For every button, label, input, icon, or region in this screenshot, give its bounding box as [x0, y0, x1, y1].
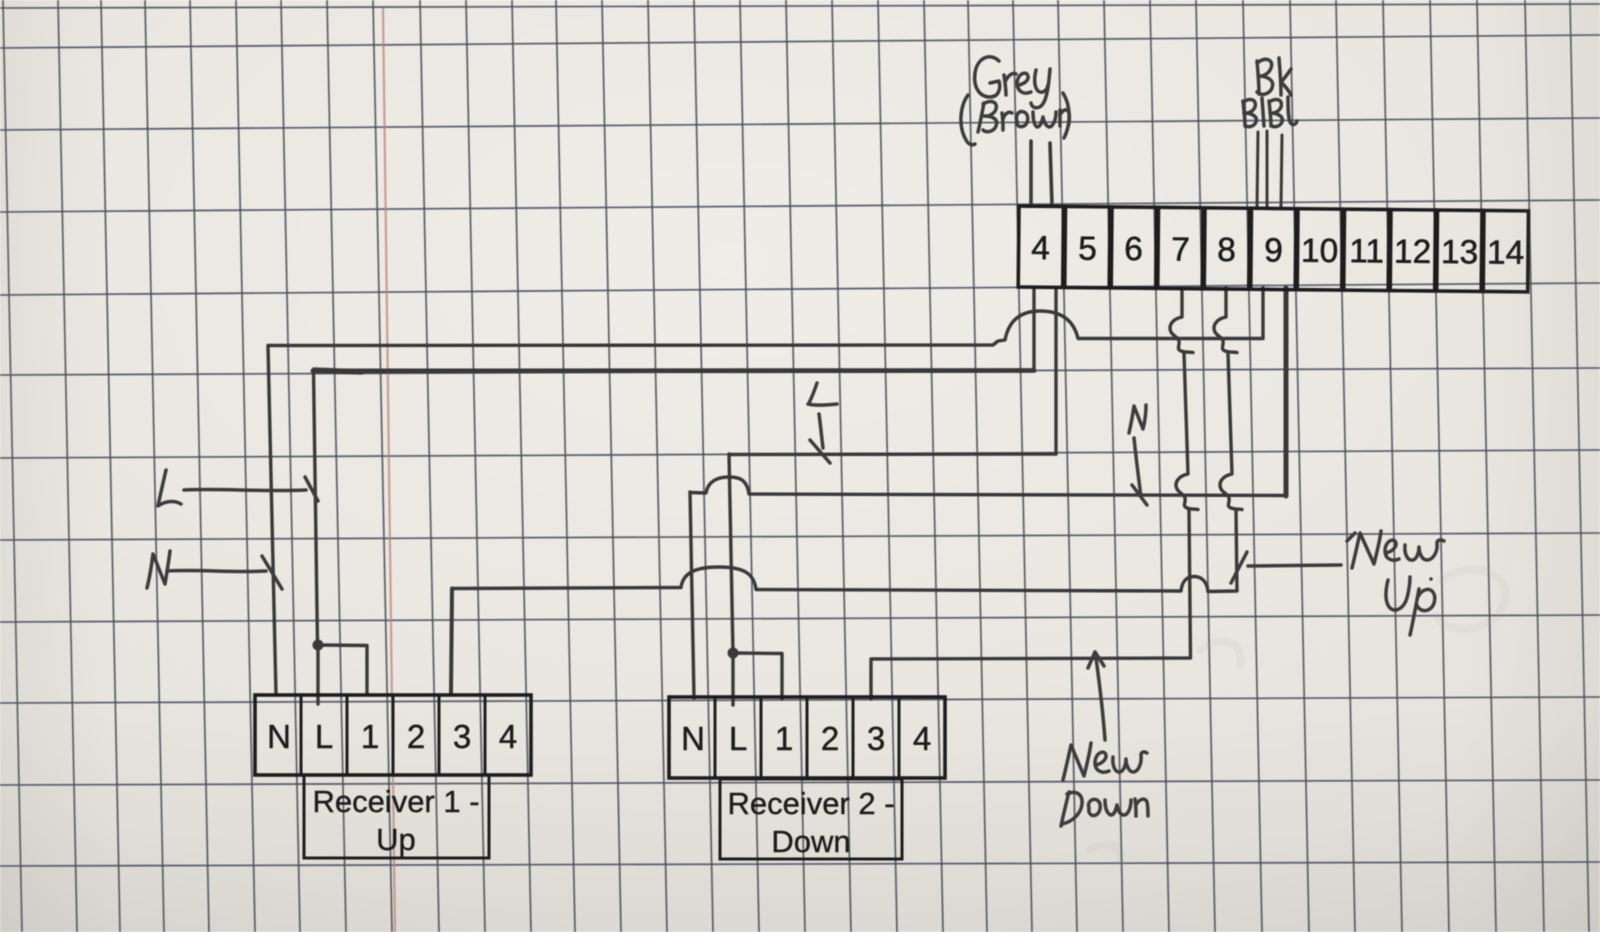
- svg-text:1: 1: [775, 720, 793, 757]
- svg-text:3: 3: [867, 720, 885, 757]
- svg-text:N: N: [267, 718, 291, 755]
- svg-text:4: 4: [913, 720, 931, 757]
- svg-text:L: L: [729, 720, 747, 757]
- svg-text:11: 11: [1349, 233, 1384, 270]
- svg-text:N: N: [681, 720, 705, 757]
- svg-text:2: 2: [821, 720, 839, 757]
- svg-text:3: 3: [453, 718, 471, 755]
- svg-text:6: 6: [1124, 231, 1143, 268]
- svg-text:10: 10: [1301, 233, 1339, 270]
- svg-text:Receiver 2 -: Receiver 2 -: [727, 786, 894, 821]
- svg-text:Up: Up: [376, 822, 416, 857]
- svg-text:4: 4: [499, 718, 517, 755]
- svg-text:12: 12: [1394, 234, 1432, 271]
- svg-text:8: 8: [1217, 232, 1236, 269]
- svg-text:2: 2: [407, 718, 425, 755]
- svg-text:5: 5: [1078, 231, 1097, 268]
- svg-text:L: L: [315, 718, 333, 755]
- svg-text:7: 7: [1171, 231, 1190, 268]
- svg-text:1: 1: [361, 718, 379, 755]
- svg-text:Receiver 1 -: Receiver 1 -: [312, 784, 479, 819]
- svg-text:Down: Down: [771, 824, 850, 859]
- svg-text:4: 4: [1031, 230, 1050, 267]
- svg-text:9: 9: [1264, 232, 1283, 269]
